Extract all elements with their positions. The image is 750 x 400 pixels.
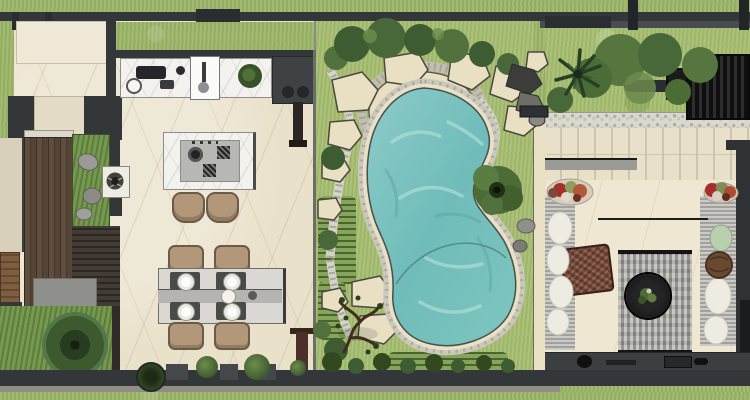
counter-grinder (176, 66, 185, 75)
bench-bar (606, 360, 636, 365)
top-wall-post-1 (628, 0, 638, 30)
plate-4 (223, 303, 241, 321)
top-wall-pilaster-1 (196, 9, 240, 22)
wall-shrub-1 (196, 356, 218, 378)
serving-dish (248, 291, 257, 300)
table-runner (158, 289, 282, 303)
left-edge-strip (0, 138, 24, 252)
bar-stool-2 (206, 192, 239, 223)
wood-panel (0, 252, 20, 304)
groundcover-patch-1 (318, 196, 356, 284)
sink-faucet (202, 62, 206, 82)
bottom-pilaster-1 (166, 364, 188, 380)
daybed-top-rail (545, 158, 637, 170)
terrace-armchair (559, 243, 614, 297)
plate-3 (177, 303, 195, 321)
terrace-bench (545, 352, 750, 371)
side-console (102, 166, 130, 198)
top-wall-pilaster-2 (545, 16, 611, 28)
feature-tree (42, 312, 108, 378)
dining-chair-4 (214, 322, 250, 350)
cooktop-controls (192, 141, 218, 144)
wall-shrub-3 (290, 360, 306, 376)
bench-tool (694, 358, 708, 365)
counter-tray (160, 80, 174, 89)
house-column-foot (289, 140, 307, 147)
bar-stool-1 (172, 192, 205, 223)
plate-1 (177, 273, 195, 291)
wall-shrub-2 (244, 354, 270, 380)
house-column (293, 102, 303, 144)
groundcover-patch-2 (318, 282, 346, 340)
step-edge-line (598, 218, 708, 220)
site-plan (0, 0, 750, 400)
centerpiece (221, 289, 236, 304)
cabinet-knob-2 (297, 86, 309, 98)
dining-chair-3 (168, 322, 204, 350)
sink-drain (198, 82, 209, 93)
entry-side-wall (106, 20, 116, 100)
counter-plant (238, 64, 262, 88)
burner-square-2 (203, 164, 216, 177)
bottom-lawn (0, 392, 750, 400)
bench-tray (664, 356, 692, 368)
entry-floor (16, 21, 110, 64)
kitchen-tall-cabinet (272, 56, 316, 104)
cabinet-knob-1 (282, 86, 294, 98)
gray-platform (33, 278, 97, 308)
kitchen-lawn-inset (116, 22, 314, 52)
counter-bowl (126, 78, 142, 94)
round-planter (136, 362, 166, 392)
burner-square-1 (217, 146, 230, 159)
burner-round (188, 147, 203, 162)
groundcover-patch-3 (388, 352, 508, 372)
house-right-edge (313, 50, 316, 372)
planter-bench (624, 80, 670, 92)
slatted-screen (686, 54, 750, 120)
top-wall-post-2 (739, 0, 749, 30)
bench-bowl (577, 355, 592, 368)
fire-table (626, 274, 670, 318)
paver-band (545, 128, 750, 182)
bottom-pilaster-2 (220, 364, 238, 380)
espresso-machine (136, 66, 166, 79)
bottom-wall (0, 370, 750, 386)
